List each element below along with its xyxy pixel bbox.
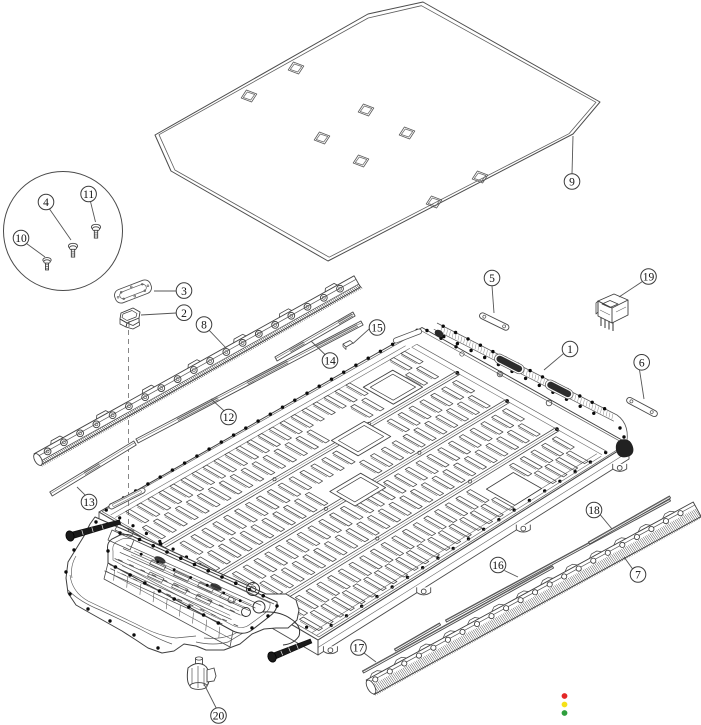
svg-text:17: 17 [353, 643, 365, 655]
svg-text:9: 9 [569, 177, 575, 189]
svg-text:19: 19 [643, 272, 655, 284]
svg-text:13: 13 [83, 497, 95, 509]
svg-text:2: 2 [181, 308, 187, 320]
svg-text:6: 6 [639, 358, 645, 370]
svg-text:14: 14 [324, 356, 336, 368]
svg-text:18: 18 [588, 505, 600, 517]
svg-text:4: 4 [43, 197, 49, 209]
svg-text:20: 20 [213, 711, 225, 723]
svg-text:7: 7 [635, 570, 641, 582]
svg-text:5: 5 [489, 273, 495, 285]
svg-text:3: 3 [181, 286, 187, 298]
svg-text:12: 12 [223, 412, 235, 424]
svg-text:10: 10 [15, 233, 27, 245]
svg-text:15: 15 [371, 323, 383, 335]
svg-text:16: 16 [492, 560, 504, 572]
svg-text:8: 8 [201, 320, 207, 332]
svg-text:11: 11 [83, 189, 94, 201]
svg-text:1: 1 [567, 344, 573, 356]
